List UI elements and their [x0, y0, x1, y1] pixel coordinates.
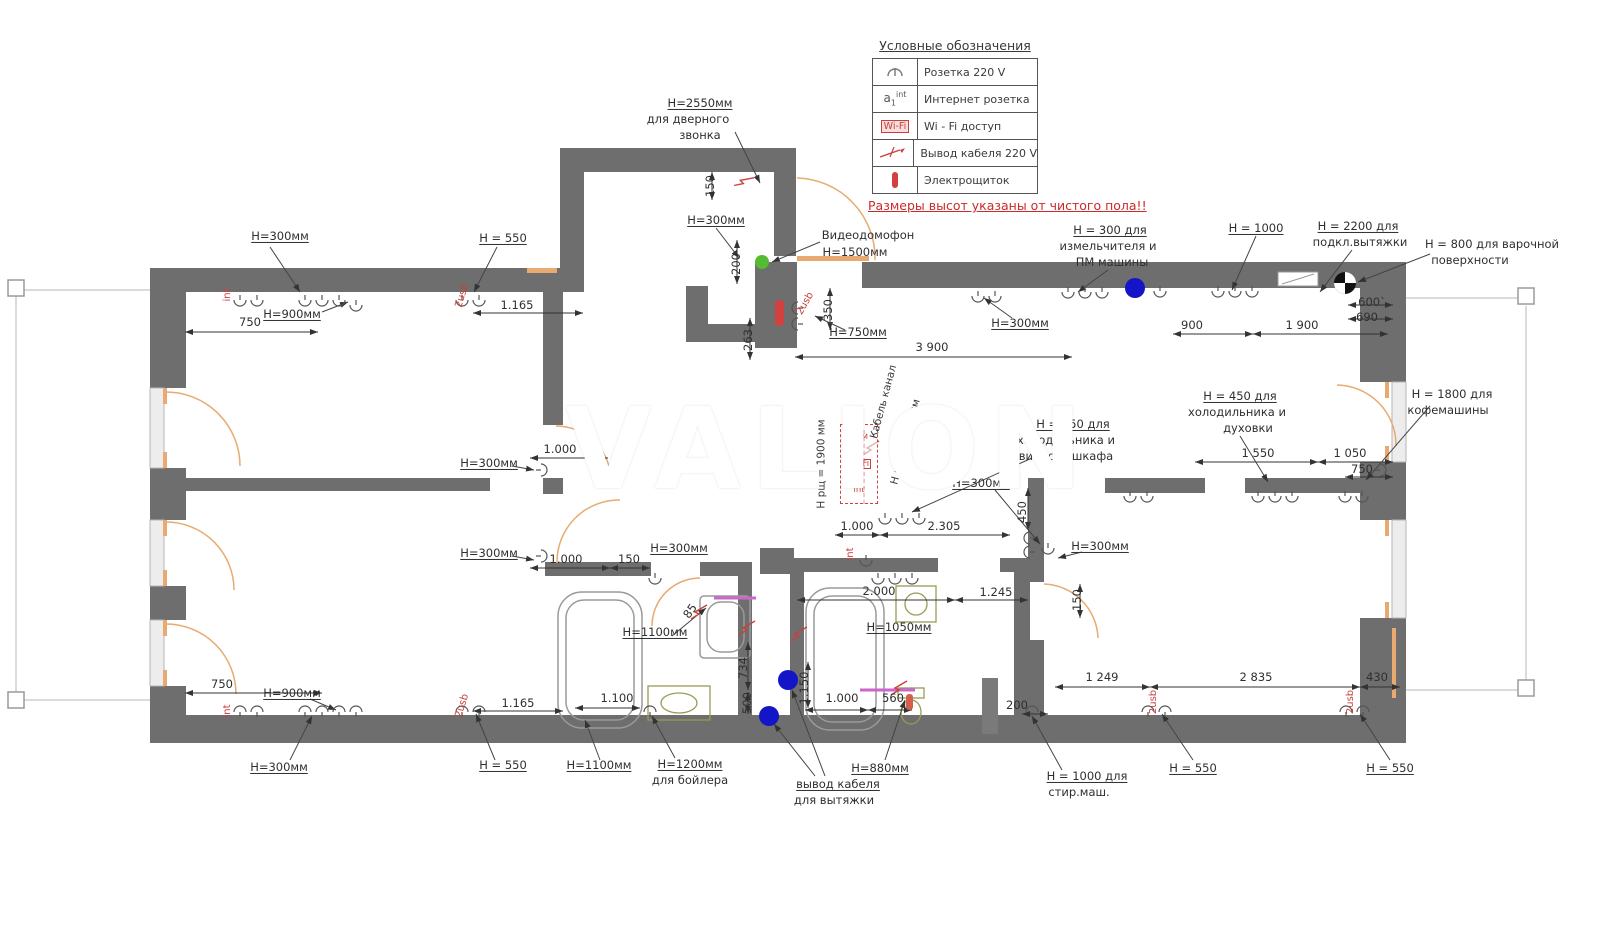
weak-current-panel-line: Wi-Fi	[847, 459, 871, 470]
internet-socket-icon: a1int	[884, 90, 907, 107]
cable-outlet-icon	[691, 605, 707, 619]
weak-current-panel-line: int	[853, 486, 864, 495]
ceiling-outlet-dot	[1125, 278, 1145, 298]
legend-table: Розетка 220 V a1int Интернет розетка Wi-…	[872, 58, 1038, 194]
legend-row-label: Электрощиток	[918, 174, 1037, 187]
weak-current-panel: АдмWi-Fiint	[840, 424, 878, 504]
legend-row: Wi-Fi Wi - Fi доступ	[873, 113, 1037, 140]
legend-row: a1int Интернет розетка	[873, 86, 1037, 113]
socket-icon	[882, 63, 908, 81]
outlets-layer	[234, 286, 1386, 717]
hood-cable-dot	[759, 706, 779, 726]
reference-frame	[16, 290, 1526, 700]
legend-row: Розетка 220 V	[873, 59, 1037, 86]
vanity-sink-2	[896, 586, 936, 622]
legend-row: Электрощиток	[873, 167, 1037, 193]
legend-row-label: Вывод кабеля 220 V	[914, 147, 1037, 160]
vanity-sink-1	[648, 686, 710, 720]
legend-row-label: Wi - Fi доступ	[918, 120, 1037, 133]
legend-row-label: Розетка 220 V	[918, 66, 1037, 79]
floor-plan-drawing	[0, 0, 1600, 931]
hood-cable-dot	[778, 670, 798, 690]
panel-icon	[889, 170, 901, 190]
legend-row: Вывод кабеля 220 V	[873, 140, 1037, 167]
cooktop-connection-icon	[1334, 272, 1356, 294]
legend-title: Условные обозначения	[872, 38, 1038, 53]
legend-row-label: Интернет розетка	[918, 93, 1037, 106]
video-intercom-dot	[755, 255, 769, 269]
weak-current-panel-line: Адм	[850, 433, 868, 442]
electric-panel-icon	[775, 300, 784, 326]
heights-note: Размеры высот указаны от чистого пола!!	[868, 198, 1147, 213]
fixtures-layer	[558, 272, 1318, 730]
cable-outlet-icon	[734, 172, 754, 191]
walls-layer	[150, 148, 1406, 743]
entry-door-arc	[797, 178, 875, 260]
legend: Условные обозначения Розетка 220 V a1int…	[872, 38, 1038, 194]
wifi-icon: Wi-Fi	[881, 120, 910, 133]
floor-plan: АдмWi-Fiint Условные обозначения Розетка…	[0, 0, 1600, 931]
cable-icon	[878, 145, 908, 161]
bathtub-2	[806, 588, 884, 730]
